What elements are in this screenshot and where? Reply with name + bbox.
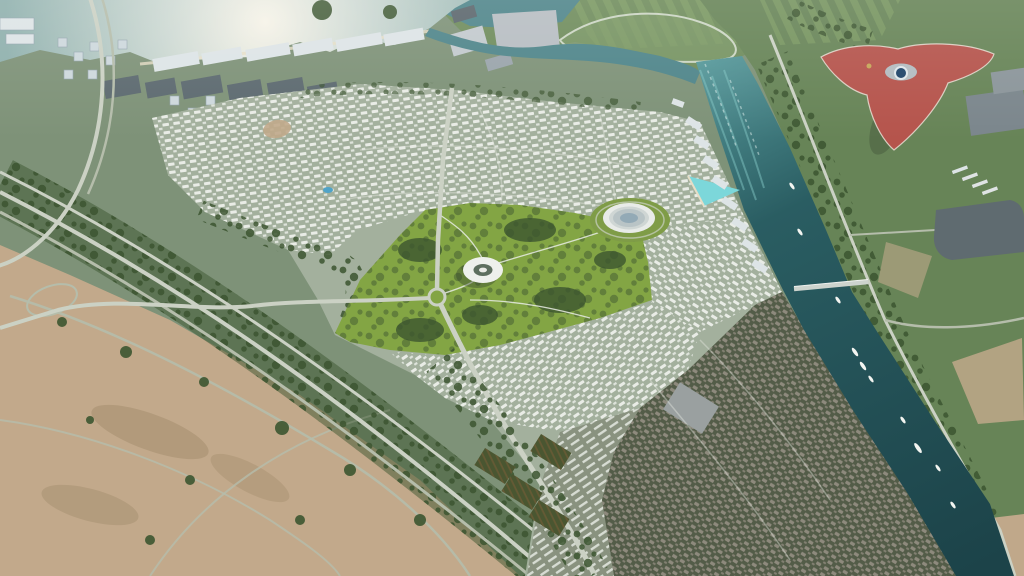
tree [185,475,195,485]
tree-cluster [396,318,444,342]
tree [295,515,305,525]
tree-cluster [594,251,626,269]
roundabout [429,289,445,305]
tree-cluster [534,287,586,313]
tree-cluster [504,218,556,242]
blue-pool [323,187,333,193]
tree-cluster [462,305,498,325]
tree [275,421,289,435]
tree [344,464,356,476]
torus-center-pad [479,268,487,273]
arena-building [934,200,1024,260]
tree [86,416,94,424]
scene-canvas [0,0,1024,576]
tree [145,535,155,545]
disc-glass-center [620,213,638,223]
tree [199,377,209,387]
aerial-render [0,0,1024,576]
atmospheric-haze [0,0,1024,140]
tree [57,317,67,327]
tree [414,514,426,526]
disc-building [590,198,670,242]
tree [120,346,132,358]
